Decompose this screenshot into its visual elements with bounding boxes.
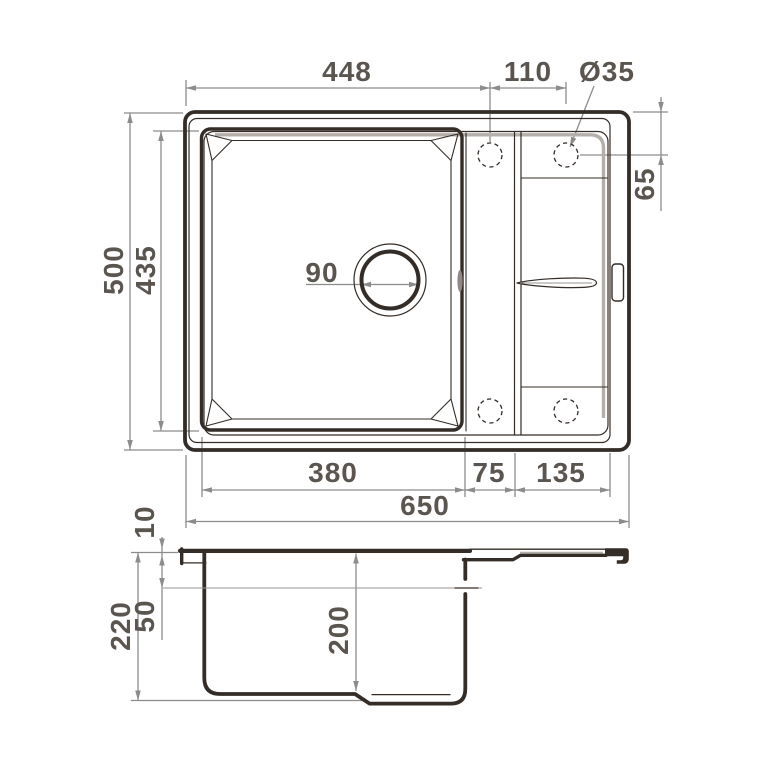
dim-label-110: 110 — [504, 56, 552, 87]
ledge-profile — [464, 555, 607, 559]
dim-label-500: 500 — [98, 245, 129, 295]
dim-label-135: 135 — [536, 457, 586, 488]
dim-label-435: 435 — [130, 245, 161, 295]
drain-control-slot — [612, 264, 624, 301]
rim-right-end — [605, 548, 629, 564]
dim-label-90: 90 — [305, 257, 338, 288]
dim-label-220: 220 — [105, 601, 136, 651]
faucet-hole-top-left — [478, 143, 502, 167]
dim-label-448: 448 — [322, 56, 372, 87]
drain-inner-circle — [362, 252, 419, 309]
side-view — [163, 548, 629, 703]
dim-label-650: 650 — [400, 490, 450, 521]
dim-label-380: 380 — [308, 457, 358, 488]
dim-label-65: 65 — [629, 167, 660, 200]
dim-label-75: 75 — [472, 457, 505, 488]
faucet-hole-bottom-left — [478, 399, 502, 423]
drain-outer-circle — [354, 244, 426, 316]
overflow-notch — [457, 270, 462, 292]
sink-technical-drawing: 448 110 Ø35 90 380 75 135 650 500 435 65… — [0, 0, 768, 768]
basin-shadow — [215, 135, 604, 418]
drawing-canvas: 448 110 Ø35 90 380 75 135 650 500 435 65… — [0, 0, 768, 768]
dim-label-hole-diameter: Ø35 — [579, 56, 635, 87]
dim-label-200: 200 — [323, 605, 354, 655]
top-view — [185, 112, 629, 450]
faucet-hole-top-right — [554, 143, 578, 167]
dim-label-10: 10 — [129, 505, 160, 538]
faucet-hole-bottom-right — [554, 399, 578, 423]
